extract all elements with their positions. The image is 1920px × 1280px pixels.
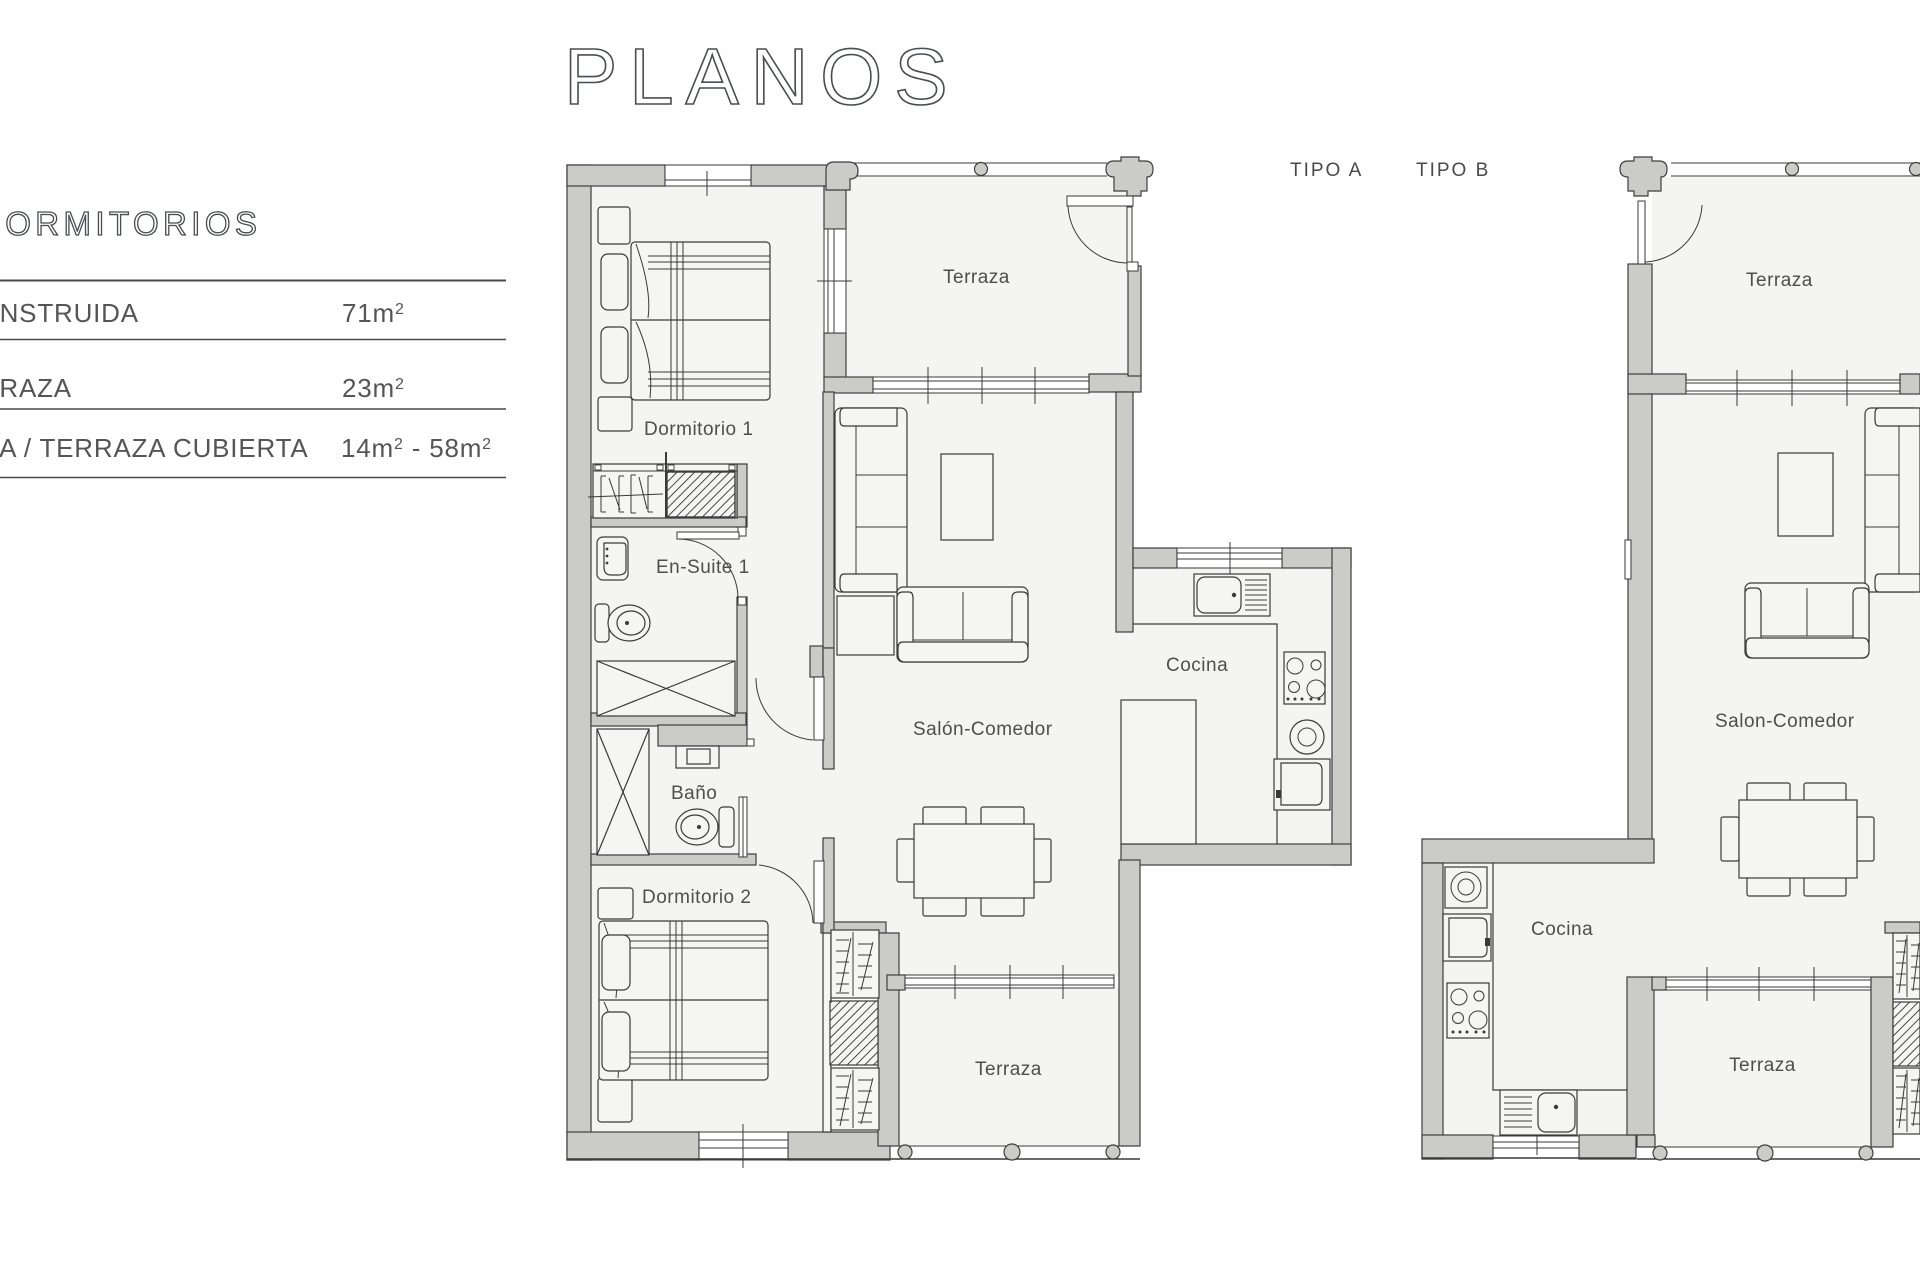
svg-text:Terraza: Terraza bbox=[1729, 1055, 1796, 1076]
svg-text:GALERIA / TERRAZA CUBIERTA: GALERIA / TERRAZA CUBIERTA bbox=[0, 433, 308, 463]
svg-text:71m2: 71m2 bbox=[342, 298, 405, 328]
svg-text:CONSTRUIDA: CONSTRUIDA bbox=[0, 298, 139, 328]
svg-text:DORMITORIOS: DORMITORIOS bbox=[0, 205, 261, 242]
svg-text:Terraza: Terraza bbox=[943, 267, 1010, 288]
svg-text:TIPO A: TIPO A bbox=[1290, 160, 1363, 181]
svg-text:Salón-Comedor: Salón-Comedor bbox=[913, 719, 1053, 740]
svg-text:23m2: 23m2 bbox=[342, 373, 405, 403]
svg-text:Salon-Comedor: Salon-Comedor bbox=[1715, 711, 1855, 732]
svg-text:Baño: Baño bbox=[671, 783, 717, 804]
svg-text:TERRAZA: TERRAZA bbox=[0, 373, 72, 403]
svg-text:Cocina: Cocina bbox=[1166, 655, 1228, 676]
svg-text:Terraza: Terraza bbox=[975, 1059, 1042, 1080]
svg-text:PLANOS: PLANOS bbox=[564, 32, 959, 121]
svg-text:Dormitorio 2: Dormitorio 2 bbox=[642, 887, 751, 908]
svg-text:Dormitorio 1: Dormitorio 1 bbox=[644, 419, 753, 440]
svg-text:Terraza: Terraza bbox=[1746, 270, 1813, 291]
svg-text:Cocina: Cocina bbox=[1531, 919, 1593, 940]
svg-text:TIPO B: TIPO B bbox=[1416, 160, 1490, 181]
svg-text:14m2 - 58m2: 14m2 - 58m2 bbox=[341, 433, 492, 463]
svg-text:En-Suite 1: En-Suite 1 bbox=[656, 557, 750, 578]
